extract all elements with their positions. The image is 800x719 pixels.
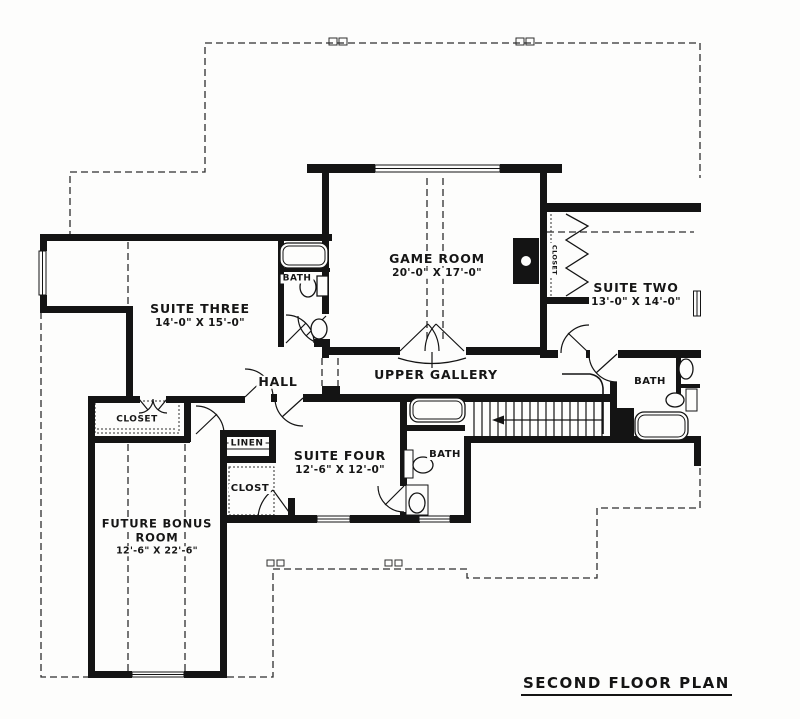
suite-two-dims: 13'-0" X 14'-0": [589, 297, 683, 308]
bifold-doors-closet-game-room: [566, 214, 588, 296]
suite-three-label: SUITE THREE: [148, 303, 252, 316]
plan-title: SECOND FLOOR PLAN: [521, 674, 732, 696]
bathtub-suite-two-inner: [638, 415, 685, 437]
vanity-suite-two: [686, 389, 697, 411]
bathtub-suite-three-inner: [283, 246, 325, 265]
vanity-suite-four: [404, 450, 413, 478]
bath-suite-three-label: BATH: [281, 275, 314, 284]
closet-suite-three-label: CLOSET: [114, 416, 159, 425]
suite-four-dims: 12'-6" X 12'-0": [293, 465, 387, 476]
door-bath-suite-two: [589, 354, 617, 382]
stair-handrail: [562, 374, 603, 434]
bonus-room-label-line2: ROOM: [133, 532, 180, 544]
staircase: [474, 374, 603, 436]
stair-treads: [474, 402, 602, 436]
suite-two-label: SUITE TWO: [591, 282, 680, 295]
sink-suite-three: [311, 319, 327, 339]
suite-four-label: SUITE FOUR: [292, 450, 388, 463]
hall-label: HALL: [256, 376, 299, 389]
game-room-dims: 20'-0" X 17'-0": [390, 268, 484, 279]
door-suite-two: [561, 325, 589, 353]
toilet-suite-four: [409, 493, 425, 513]
door-bath-suite-four: [378, 486, 404, 512]
roof-outline-bottom: [41, 312, 700, 677]
bath-suite-four-label: BATH: [427, 450, 463, 460]
bath-suite-two-label: BATH: [632, 377, 668, 387]
toilet-suite-two: [679, 359, 693, 379]
roof-outline-dashed: [41, 43, 700, 677]
bathtub-suite-four-inner: [413, 401, 462, 419]
roof-vent-marks: [267, 38, 534, 566]
bonus-room-label-line1: FUTURE BONUS: [100, 518, 214, 530]
plan-linework: [0, 0, 800, 719]
sink-suite-two: [666, 393, 684, 407]
closet-suite-four-label: CLOST: [229, 484, 271, 494]
upper-gallery-label: UPPER GALLERY: [372, 369, 500, 382]
door-suite-four: [275, 398, 303, 426]
fireplace-flue: [521, 256, 531, 266]
game-room-label: GAME ROOM: [387, 253, 487, 266]
bonus-room-dims: 12'-6" X 22'-6": [114, 546, 200, 556]
linen-closet-label: LINEN: [229, 440, 266, 449]
door-bonus-room: [196, 406, 224, 434]
suite-three-dims: 14'-0" X 15'-0": [153, 318, 247, 329]
toilet-tank-suite-three: [317, 276, 328, 296]
closet-game-room-label: CLOSET: [551, 243, 558, 277]
fireplace: [513, 238, 539, 284]
french-doors-game-room: [398, 324, 466, 368]
second-floor-plan-drawing: GAME ROOM 20'-0" X 17'-0" SUITE TWO 13'-…: [0, 0, 800, 719]
